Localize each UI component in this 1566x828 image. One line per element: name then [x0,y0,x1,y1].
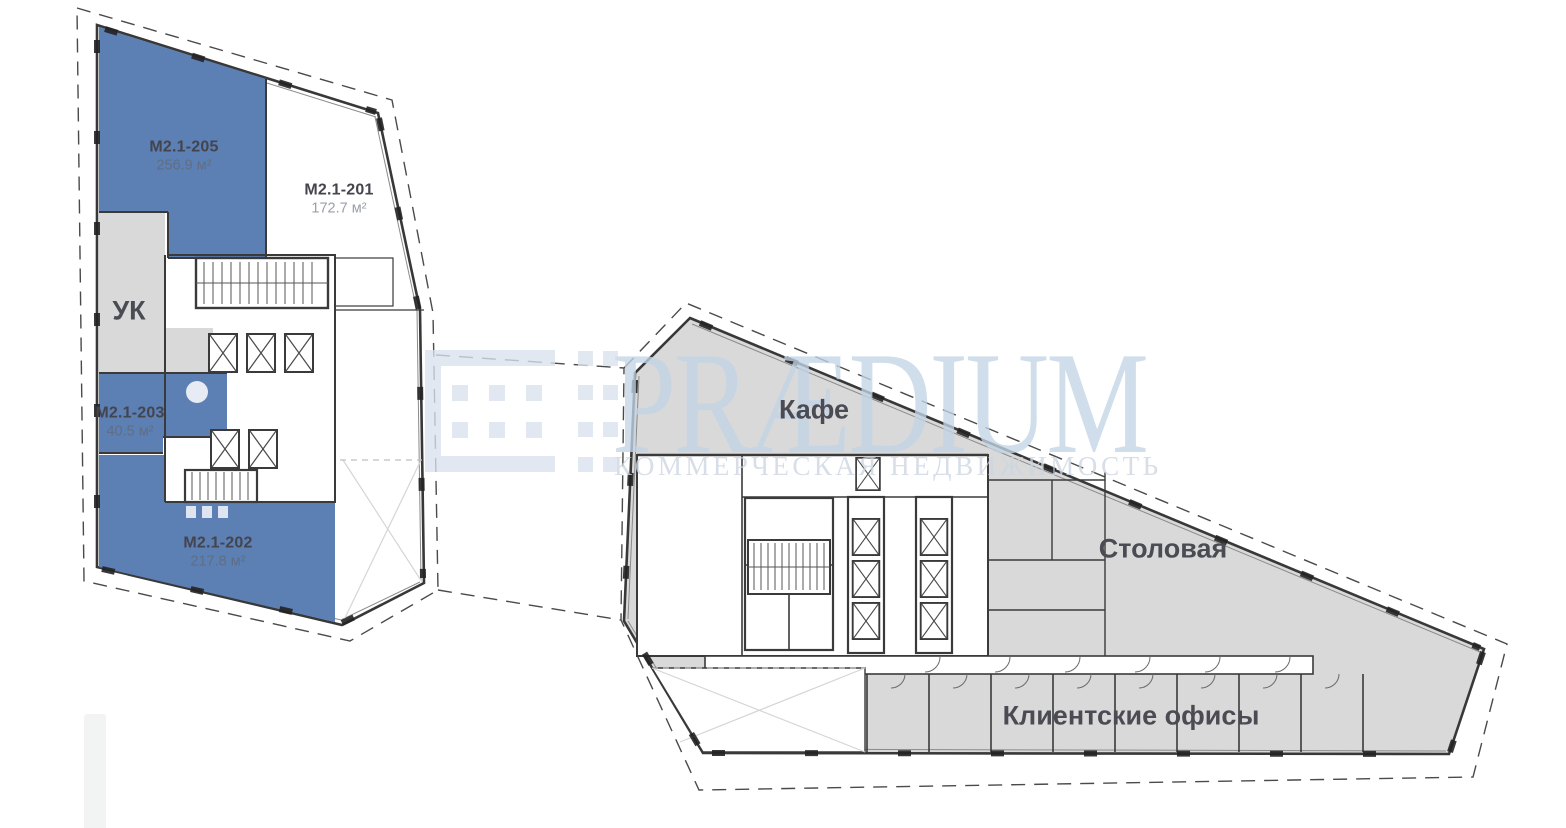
elevator-icon [921,561,948,597]
elevator-icon [921,519,948,555]
right-building [624,318,1484,754]
elevator-icon [209,334,237,372]
unit-id: М2.1-203 [95,405,164,423]
elevator-icon [211,430,239,468]
elevator-icon [853,519,880,555]
lift-symbol-icon [186,381,208,403]
unit-area: 217.8 м² [183,554,252,570]
unit-label-m2.1-203: М2.1-203 40.5 м² [95,405,164,440]
right-stair [748,540,830,594]
elevator-icon [921,603,948,639]
left-building [97,25,424,625]
zone-label-client-offices: Клиентские офисы [1003,701,1260,732]
unit-id: М2.1-202 [183,535,252,553]
zone-label-cafe: Кафе [779,395,849,426]
unit-label-m2.1-201: М2.1-201 172.7 м² [304,182,373,217]
elevator-icon [247,334,275,372]
left-stair-lower [185,470,257,502]
zone-label-canteen: Столовая [1099,534,1228,565]
elevator-icon [285,334,313,372]
unit-id: М2.1-205 [149,139,218,157]
elevator-icon [856,458,880,490]
elevator-icon [853,561,880,597]
left-stair-upper [196,258,328,308]
elevator-icon [853,603,880,639]
unit-id: М2.1-201 [304,182,373,200]
unit-area: 172.7 м² [304,201,373,217]
side-panel-fragment [84,714,106,828]
unit-label-m2.1-202: М2.1-202 217.8 м² [183,535,252,570]
unit-area: 40.5 м² [95,424,164,440]
unit-label-m2.1-205: М2.1-205 256.9 м² [149,139,218,174]
elevator-icon [249,430,277,468]
zone-label-uk: УК [112,296,145,327]
floor-plan-viewport: PRÆDIUM КОММЕРЧЕСКАЯ НЕДВИЖИМОСТЬ М2.1-2… [0,0,1566,828]
unit-area: 256.9 м² [149,158,218,174]
